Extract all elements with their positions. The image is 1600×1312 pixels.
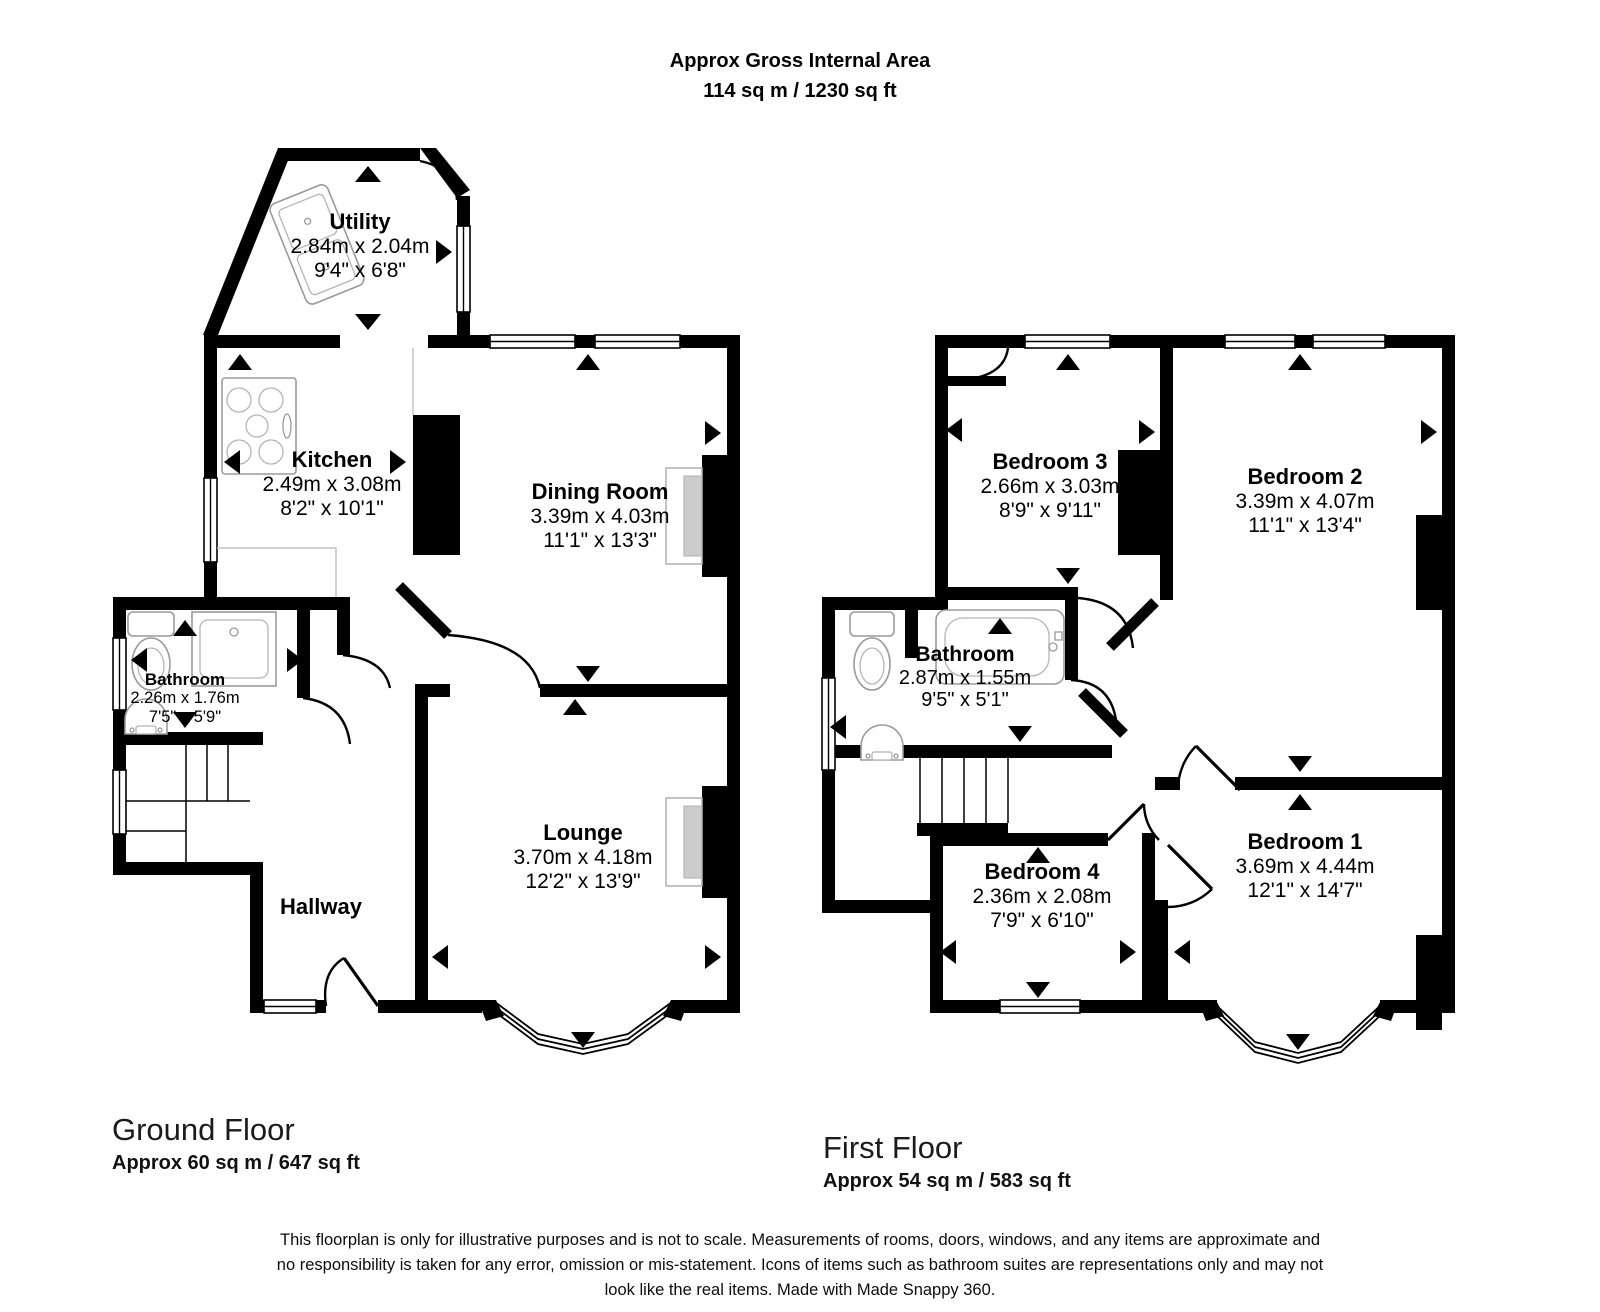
first-floor-title: First Floor (823, 1130, 963, 1166)
stairs (126, 745, 250, 862)
door-leaf (1108, 804, 1144, 840)
room-label-bedroom-3: Bedroom 3 2.66m x 3.03m 8'9" x 9'11" (930, 450, 1170, 522)
door-arc (1078, 598, 1133, 648)
front-door-leaf (344, 958, 378, 1006)
first-floor-area: Approx 54 sq m / 583 sq ft (823, 1170, 1071, 1193)
door-arc (343, 655, 390, 688)
window (490, 335, 575, 348)
window (1000, 1000, 1080, 1013)
bay-window (1215, 1004, 1382, 1063)
page-title: Approx Gross Internal Area 114 sq m / 12… (0, 46, 1600, 106)
gross-area-title: Approx Gross Internal Area (0, 46, 1600, 76)
door-arc (420, 161, 457, 200)
room-label-lounge: Lounge 3.70m x 4.18m 12'2" x 13'9" (463, 821, 703, 893)
disclaimer-text: This floorplan is only for illustrative … (270, 1228, 1330, 1302)
door-arc (448, 635, 540, 688)
room-label-kitchen: Kitchen 2.49m x 3.08m 8'2" x 10'1" (232, 448, 432, 520)
room-label-bedroom-4: Bedroom 4 2.36m x 2.08m 7'9" x 6'10" (922, 860, 1162, 932)
front-door-arc (325, 958, 344, 1006)
window (204, 478, 217, 562)
room-label-bathroom-ff: Bathroom 2.87m x 1.55m 9'5" x 5'1" (845, 643, 1085, 712)
window (1313, 335, 1385, 348)
door-arc (303, 698, 350, 744)
basin-icon (861, 725, 903, 760)
door-arc (1178, 746, 1196, 790)
room-label-bathroom-gf: Bathroom 2.26m x 1.76m 7'5" x 5'9" (105, 670, 265, 726)
stairs (920, 758, 1008, 823)
window (264, 1000, 316, 1013)
room-label-hallway: Hallway (241, 895, 401, 920)
room-label-dining-room: Dining Room 3.39m x 4.03m 11'1" x 13'3" (480, 480, 720, 552)
room-label-utility: Utility 2.84m x 2.04m 9'4" x 6'8" (260, 210, 460, 282)
ground-floor-title: Ground Floor (112, 1112, 295, 1148)
window (595, 335, 680, 348)
gross-area-value: 114 sq m / 1230 sq ft (0, 76, 1600, 106)
ground-floor-plan (113, 148, 740, 1054)
door-arc (958, 348, 1008, 380)
window (113, 770, 126, 834)
floorplan-page: Approx Gross Internal Area 114 sq m / 12… (0, 0, 1600, 1312)
window (1225, 335, 1295, 348)
ground-floor-area: Approx 60 sq m / 647 sq ft (112, 1152, 360, 1175)
door-leaf (1196, 746, 1240, 790)
window (1025, 335, 1110, 348)
window (822, 678, 835, 770)
room-label-bedroom-1: Bedroom 1 3.69m x 4.44m 12'1" x 14'7" (1185, 830, 1425, 902)
room-label-bedroom-2: Bedroom 2 3.39m x 4.07m 11'1" x 13'4" (1185, 465, 1425, 537)
